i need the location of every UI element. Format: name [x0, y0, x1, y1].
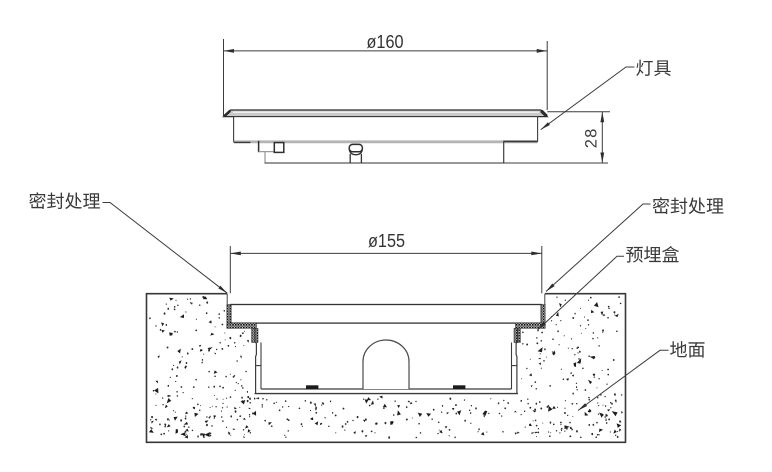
svg-text:ø160: ø160 [367, 31, 404, 52]
svg-text:28: 28 [583, 128, 601, 149]
svg-text:ø155: ø155 [368, 230, 405, 251]
